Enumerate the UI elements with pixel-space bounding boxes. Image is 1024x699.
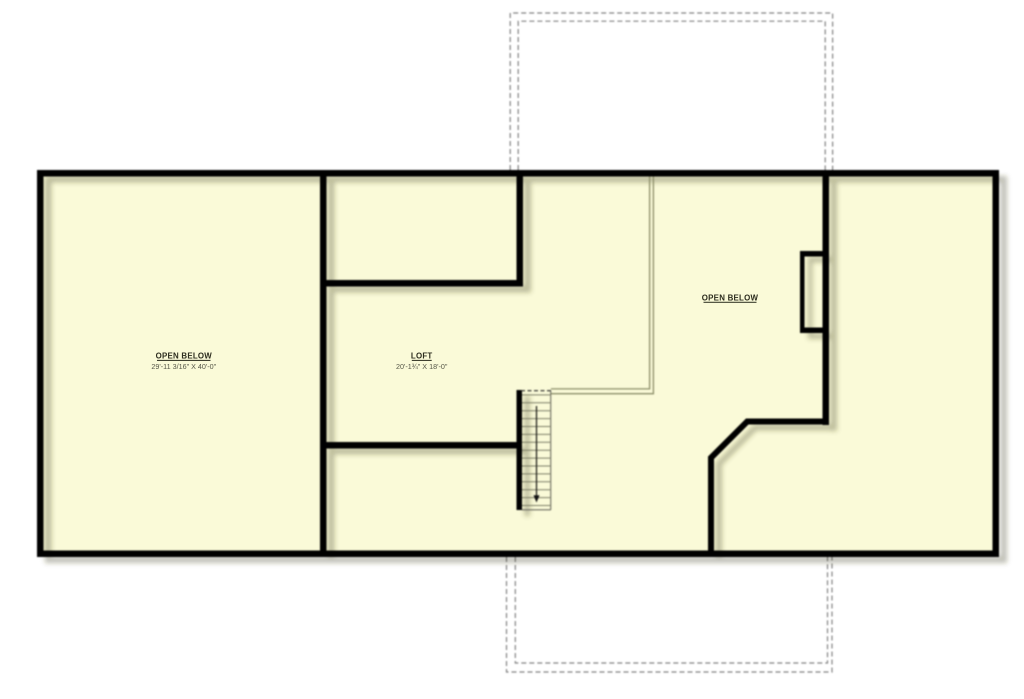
svg-text:29'-11 3/16" X 40'-0": 29'-11 3/16" X 40'-0" [151,362,216,371]
svg-text:20'-1¾" X 18'-0": 20'-1¾" X 18'-0" [396,362,448,371]
svg-text:LOFT: LOFT [411,352,433,361]
svg-text:OPEN BELOW: OPEN BELOW [156,352,213,361]
svg-text:OPEN BELOW: OPEN BELOW [702,293,759,302]
